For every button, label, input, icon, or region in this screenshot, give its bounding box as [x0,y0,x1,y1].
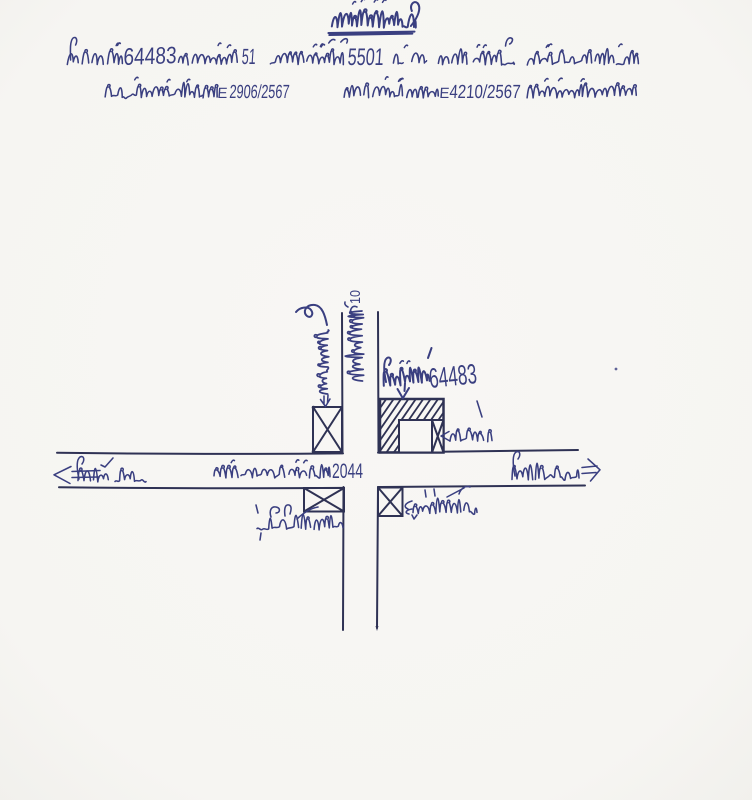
svg-text:10: 10 [347,290,364,304]
svg-text:2044: 2044 [332,460,363,483]
svg-text:64483: 64483 [123,42,177,71]
svg-text:2906/2567: 2906/2567 [229,82,290,103]
svg-text:64483: 64483 [427,358,478,394]
svg-text:4210/2567: 4210/2567 [449,82,521,103]
svg-text:5501: 5501 [347,44,385,71]
svg-text:E: E [217,85,228,102]
svg-text:51: 51 [241,44,257,69]
